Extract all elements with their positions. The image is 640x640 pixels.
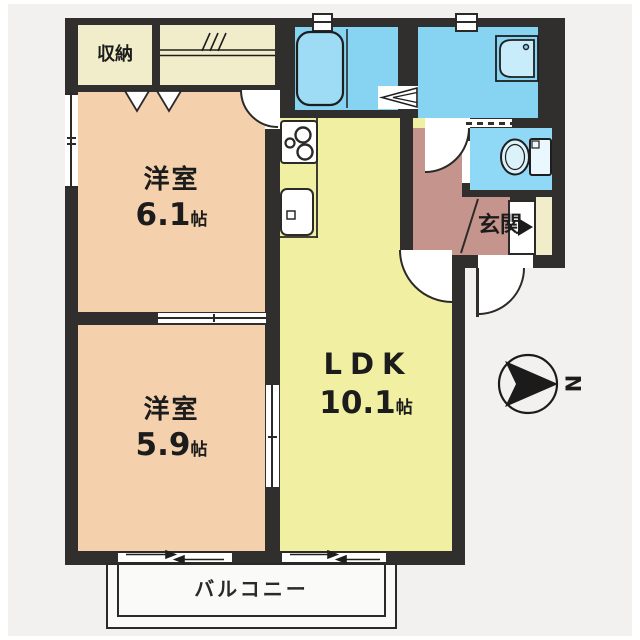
- sliding-door-tick: [213, 314, 215, 322]
- sliding-door-tick: [268, 436, 277, 438]
- room-washroom: [418, 27, 538, 118]
- closet-label: 収納: [78, 45, 152, 65]
- hall-wall: [400, 110, 413, 250]
- washroom-vent-dashes: [466, 119, 512, 127]
- ldk-label: LDK: [282, 349, 454, 381]
- balcony-label: バルコニー: [106, 578, 397, 600]
- entrance-door-gap: [478, 255, 533, 268]
- bedroom2-size-unit: 帖: [190, 440, 207, 460]
- sliding-door-line: [158, 317, 266, 319]
- bedroom1-size: 6.1帖: [78, 198, 265, 232]
- window-line: [457, 21, 476, 23]
- room-bathroom: [295, 27, 398, 110]
- bedroom2-label: 洋室: [78, 396, 265, 425]
- bedroom1-label: 洋室: [78, 166, 265, 195]
- compass-north-label: N: [560, 372, 583, 396]
- ldk-size-unit: 帖: [396, 398, 413, 418]
- bedroom1-size-unit: 帖: [190, 210, 207, 230]
- window-line: [70, 93, 72, 188]
- entrance-label: 玄関: [455, 214, 545, 238]
- ldk-size: 10.1帖: [280, 386, 452, 420]
- room-toilet: [470, 128, 552, 190]
- bedroom1-size-value: 6.1: [136, 197, 191, 233]
- ldk-size-value: 10.1: [319, 385, 396, 421]
- floorplan: 収納 洋室 6.1帖 洋室 5.9帖 LDK 10.1帖 玄関 バルコニー N: [0, 0, 640, 640]
- bedroom2-size: 5.9帖: [78, 428, 265, 462]
- washroom-door-gap: [425, 118, 470, 128]
- window-line: [314, 21, 331, 23]
- bedroom2-size-value: 5.9: [136, 427, 191, 463]
- window-tick: [67, 137, 76, 139]
- entrance-door-leaf: [476, 268, 479, 317]
- room-closet2: [160, 25, 275, 85]
- window-tick: [67, 143, 76, 145]
